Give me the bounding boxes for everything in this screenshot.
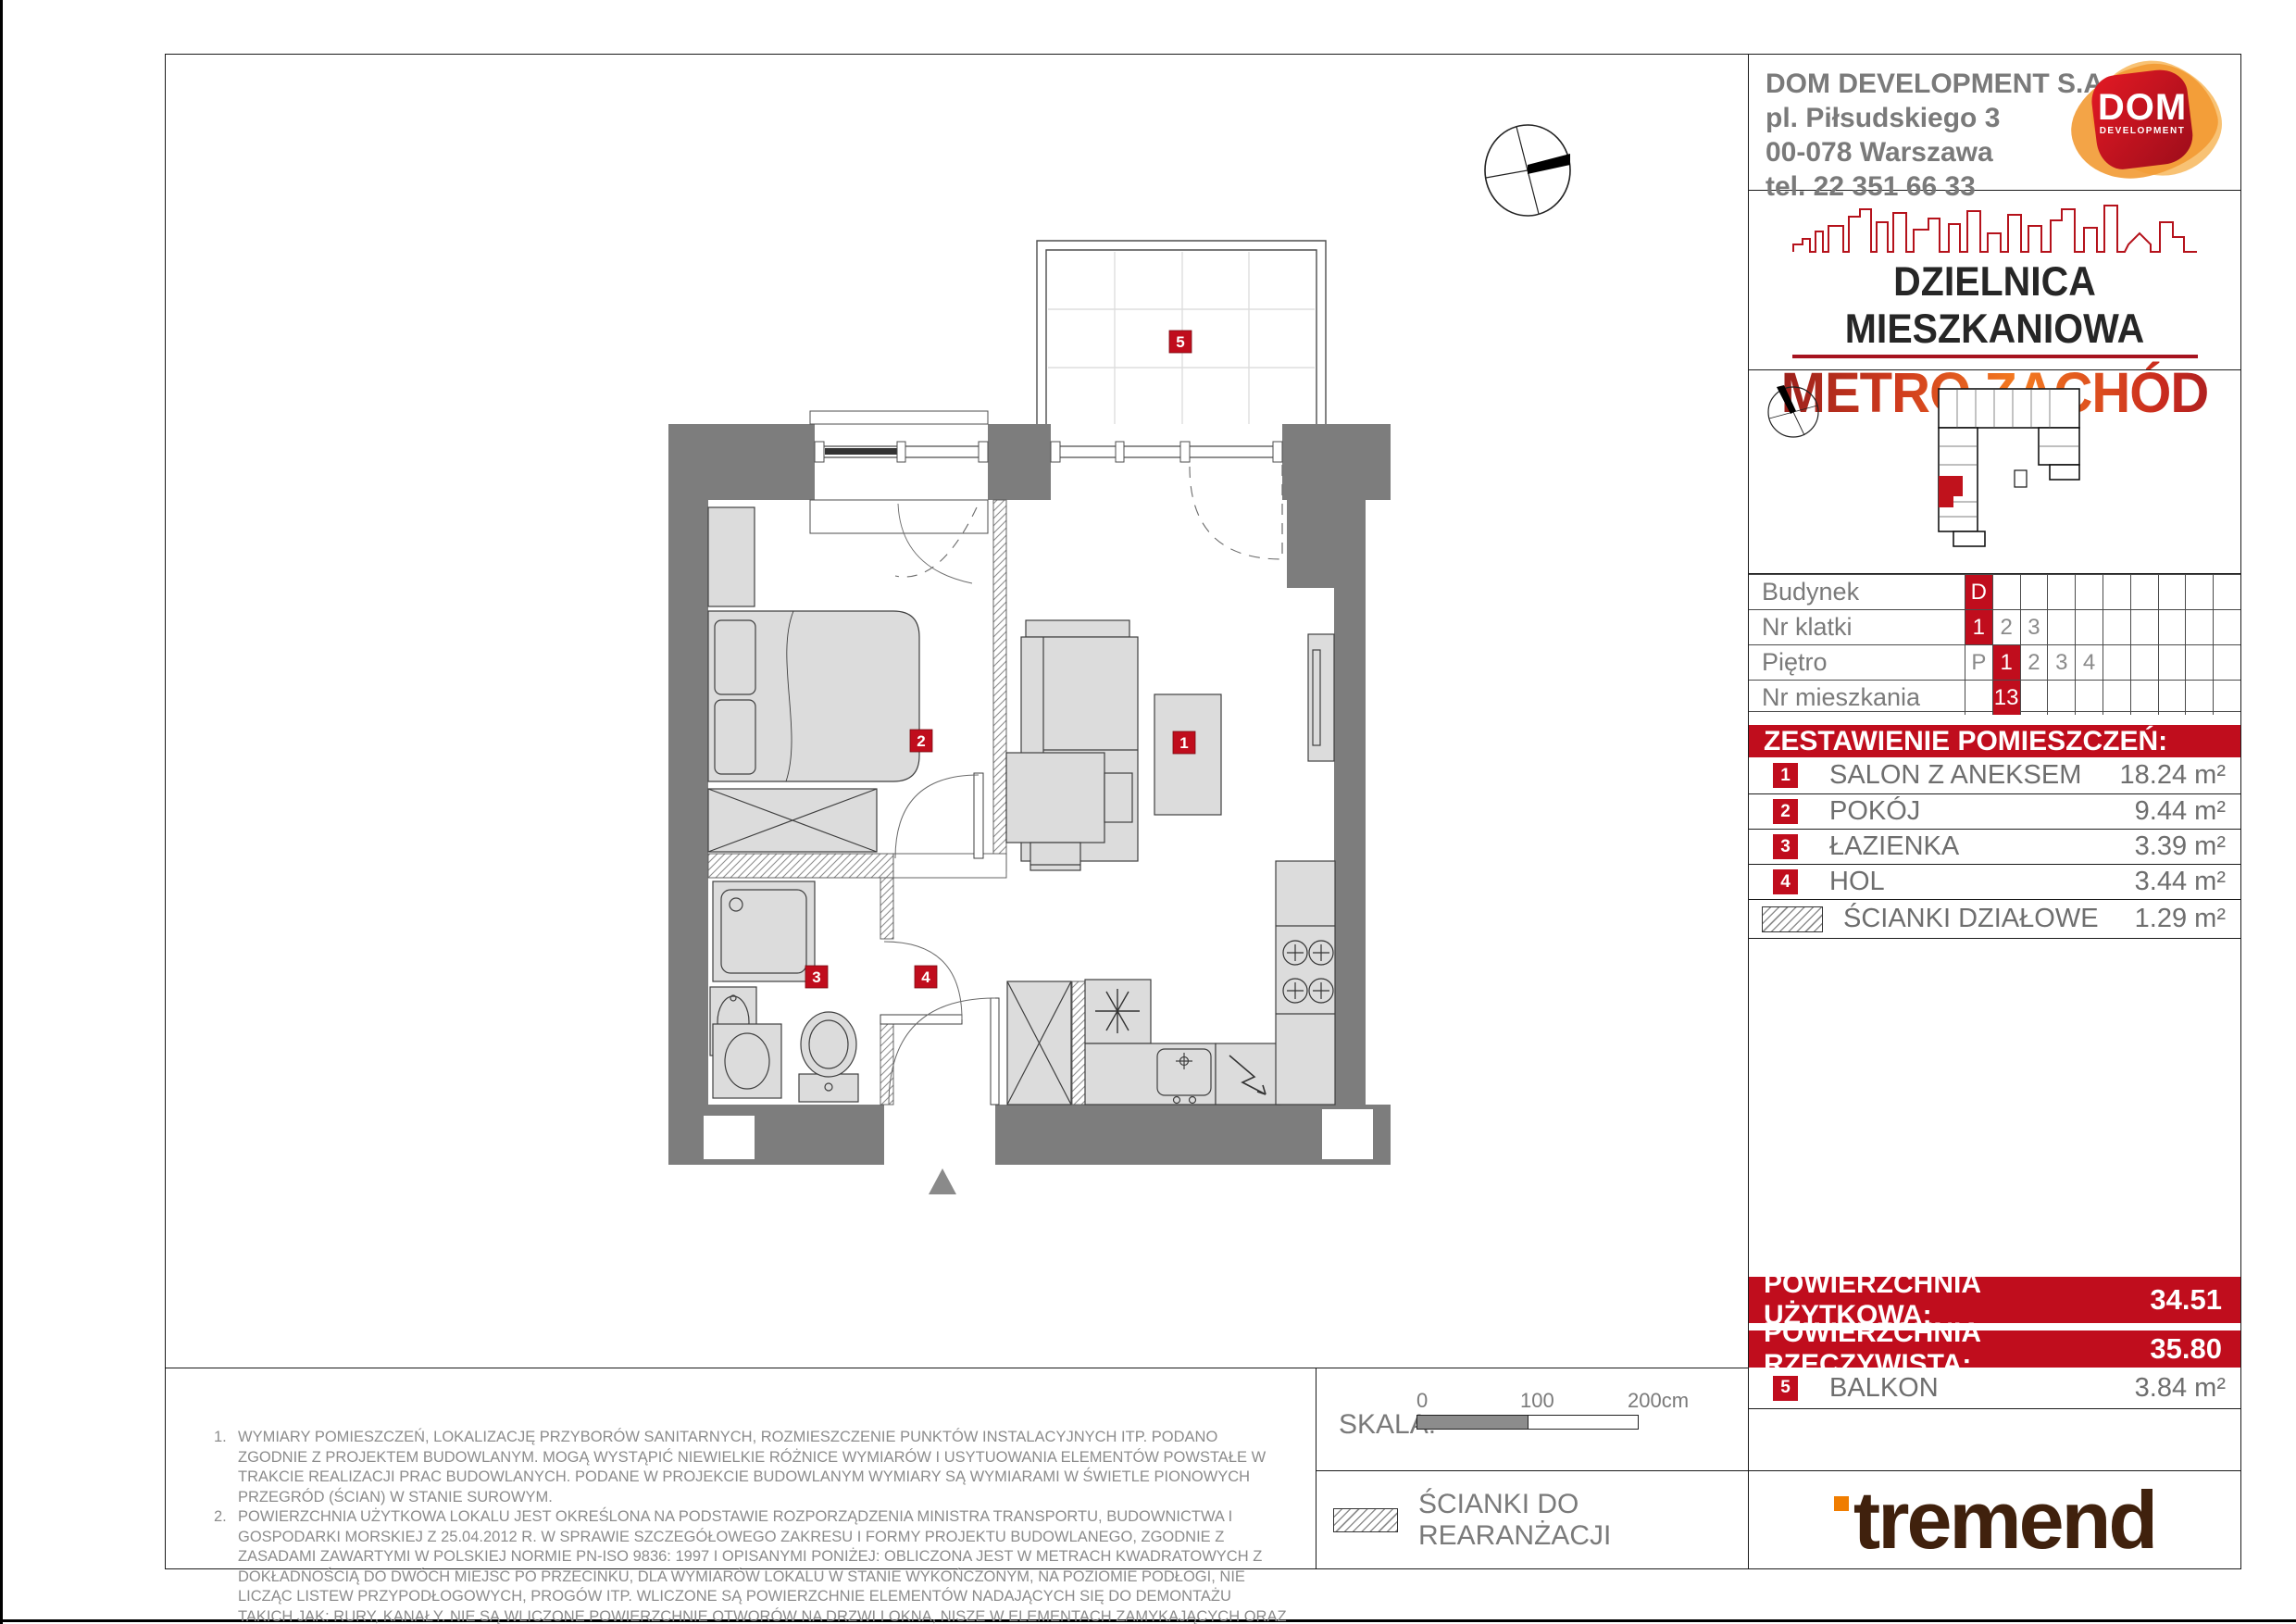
room-name: SALON Z ANEKSEM [1829, 760, 2120, 791]
note-item: 2. POWIERZCHNIA UŻYTKOWA LOKALU JEST OKR… [214, 1507, 1288, 1624]
entrance-arrow [929, 1168, 956, 1194]
row-label: Nr klatki [1749, 610, 1965, 644]
scale-tick-200: 200cm [1628, 1389, 1689, 1413]
highlighted-unit [1939, 476, 1963, 496]
tremend-wordmark: tremend [1853, 1483, 2155, 1557]
rooms-header: ZESTAWIENIE POMIESZCZEŃ: [1749, 725, 2240, 757]
table-row-klatka: Nr klatki 1 2 3 [1749, 610, 2240, 645]
shower [713, 881, 815, 981]
wall-niche-right [1322, 1109, 1373, 1159]
room-row-salon: 1 SALON Z ANEKSEM 18.24 m² [1749, 757, 2240, 794]
room-row-lazienka: 3 ŁAZIENKA 3.39 m² [1749, 830, 2240, 865]
scale-box: SKALA: 0 100 200cm [1316, 1368, 1749, 1471]
branding-rule [1792, 355, 2198, 358]
actual-area-bar: POWIERZCHNIA RZECZYWISTA: 35.80 [1749, 1330, 2240, 1368]
room-number-badge: 2 [1773, 799, 1798, 824]
logo-subtext: DEVELOPMENT [2094, 126, 2190, 136]
floor-plan: 1 2 3 4 5 [662, 213, 1393, 1208]
entrance-door-leaf [991, 998, 999, 1105]
building-site-map [1939, 389, 2079, 546]
scale-tick-0: 0 [1416, 1389, 1428, 1413]
tv-cabinet [1308, 634, 1334, 761]
table-row-pietro: Piętro P 1 2 3 4 [1749, 645, 2240, 681]
skyline-icon [1791, 198, 2199, 256]
toilet-tank [799, 1074, 858, 1102]
plan-label-4: 4 [921, 968, 930, 986]
dining-chair [1104, 773, 1132, 822]
room-number-badge: 4 [1773, 869, 1798, 894]
furniture [708, 507, 1335, 1105]
partition-hatch-swatch [1762, 906, 1823, 932]
dining-chair [1030, 843, 1080, 870]
wall-niche-left [704, 1116, 755, 1159]
room-name: BALKON [1829, 1373, 2135, 1404]
balcony-row: 5 BALKON 3.84 m² [1749, 1368, 2240, 1409]
usable-area-bar: POWIERZCHNIA UŻYTKOWA: 34.51 [1749, 1277, 2240, 1323]
plan-label-5: 5 [1176, 333, 1184, 351]
cell-active: 1 [1992, 645, 2020, 680]
bedroom-cabinet [708, 507, 755, 606]
room-row-scianki: ŚCIANKI DZIAŁOWE 1.29 m² [1749, 900, 2240, 939]
kitchen-right-counter [1276, 861, 1335, 1105]
note-number: 1. [214, 1428, 238, 1507]
legend-box: ŚCIANKI DO REARANŻACJI [1316, 1470, 1749, 1569]
room-number-badge: 5 [1773, 1376, 1798, 1401]
plan-label-1: 1 [1179, 734, 1188, 752]
cell-active: 1 [1965, 610, 1992, 644]
note-number: 2. [214, 1507, 238, 1624]
fridge [1216, 1043, 1280, 1105]
logo-text: DOM [2094, 89, 2190, 126]
row-label: Piętro [1749, 645, 1965, 680]
scale-tick-100: 100 [1520, 1389, 1554, 1413]
tremend-dot-icon [1834, 1496, 1849, 1511]
room-name: ŁAZIENKA [1829, 831, 2135, 862]
company-info-section: DOM DEVELOPMENT S.A. pl. Piłsudskiego 3 … [1749, 54, 2240, 191]
siteplan-compass-icon [1768, 385, 1818, 437]
tv [1313, 650, 1320, 745]
room-area: 1.29 m² [2135, 904, 2226, 934]
page-edge-left [0, 0, 3, 1624]
room-number-badge: 3 [1773, 834, 1798, 859]
district-title: DZIELNICA MIESZKANIOWA [1749, 258, 2240, 353]
bedroom-doorway [896, 856, 980, 876]
room-row-hol: 4 HOL 3.44 m² [1749, 865, 2240, 900]
siteplan-section [1749, 370, 2240, 574]
room-name: POKÓJ [1829, 796, 2135, 827]
plan-label-3: 3 [812, 968, 820, 986]
notes-box: 1. WYMIARY POMIESZCZEŃ, LOKALIZACJĘ PRZY… [166, 1368, 1316, 1569]
doors [880, 773, 999, 1105]
usable-area-value: 34.51 [2150, 1283, 2222, 1317]
note-text: WYMIARY POMIESZCZEŃ, LOKALIZACJĘ PRZYBOR… [238, 1428, 1288, 1507]
room-row-pokoj: 2 POKÓJ 9.44 m² [1749, 794, 2240, 830]
project-branding-section: DZIELNICA MIESZKANIOWA METRO ZACHÓD [1749, 191, 2240, 370]
dom-development-logo: DOM DEVELOPMENT [2061, 61, 2226, 183]
unit-location-table: Budynek D Nr klatki 1 2 3 Piętro P 1 2 3… [1749, 574, 2240, 712]
room-area: 3.44 m² [2135, 867, 2226, 897]
row-label: Budynek [1749, 575, 1965, 609]
cell-active: D [1965, 575, 1992, 609]
living-window-balcony-door [1051, 424, 1282, 559]
cell-active: 13 [1992, 681, 2020, 715]
washing-machine [713, 1024, 781, 1098]
scale-bar-fill [1417, 1416, 1529, 1429]
coffee-table [1154, 694, 1221, 815]
room-area: 3.39 m² [2135, 831, 2226, 862]
table-row-budynek: Budynek D [1749, 575, 2240, 610]
note-item: 1. WYMIARY POMIESZCZEŃ, LOKALIZACJĘ PRZY… [214, 1428, 1288, 1507]
legend-label: ŚCIANKI DO REARANŻACJI [1418, 1489, 1749, 1552]
room-area: 3.84 m² [2135, 1373, 2226, 1404]
room-area: 18.24 m² [2120, 760, 2226, 791]
table-row-mieszkanie: Nr mieszkania 13 [1749, 681, 2240, 715]
note-text: POWIERZCHNIA UŻYTKOWA LOKALU JEST OKREŚL… [238, 1507, 1288, 1624]
tremend-logo-box: tremend [1749, 1470, 2240, 1569]
room-area: 9.44 m² [2135, 796, 2226, 827]
north-compass-icon [1479, 120, 1576, 220]
room-number-badge: 1 [1773, 763, 1798, 788]
room-name: HOL [1829, 867, 2135, 897]
sofa-back [1026, 620, 1129, 637]
bedroom-door-leaf [974, 773, 983, 858]
plan-label-2: 2 [917, 732, 925, 750]
pillow [715, 700, 755, 774]
legend-hatch-swatch [1333, 1508, 1398, 1532]
bedroom-window [810, 411, 988, 583]
pillow [715, 620, 755, 694]
dining-table [1006, 753, 1104, 843]
actual-area-value: 35.80 [2150, 1332, 2222, 1366]
rooms-header-text: ZESTAWIENIE POMIESZCZEŃ: [1764, 726, 2167, 757]
room-name: ŚCIANKI DZIAŁOWE [1843, 904, 2135, 934]
tremend-logo: tremend [1834, 1483, 2155, 1557]
row-label: Nr mieszkania [1749, 681, 1965, 715]
scale-bar [1416, 1415, 1639, 1430]
